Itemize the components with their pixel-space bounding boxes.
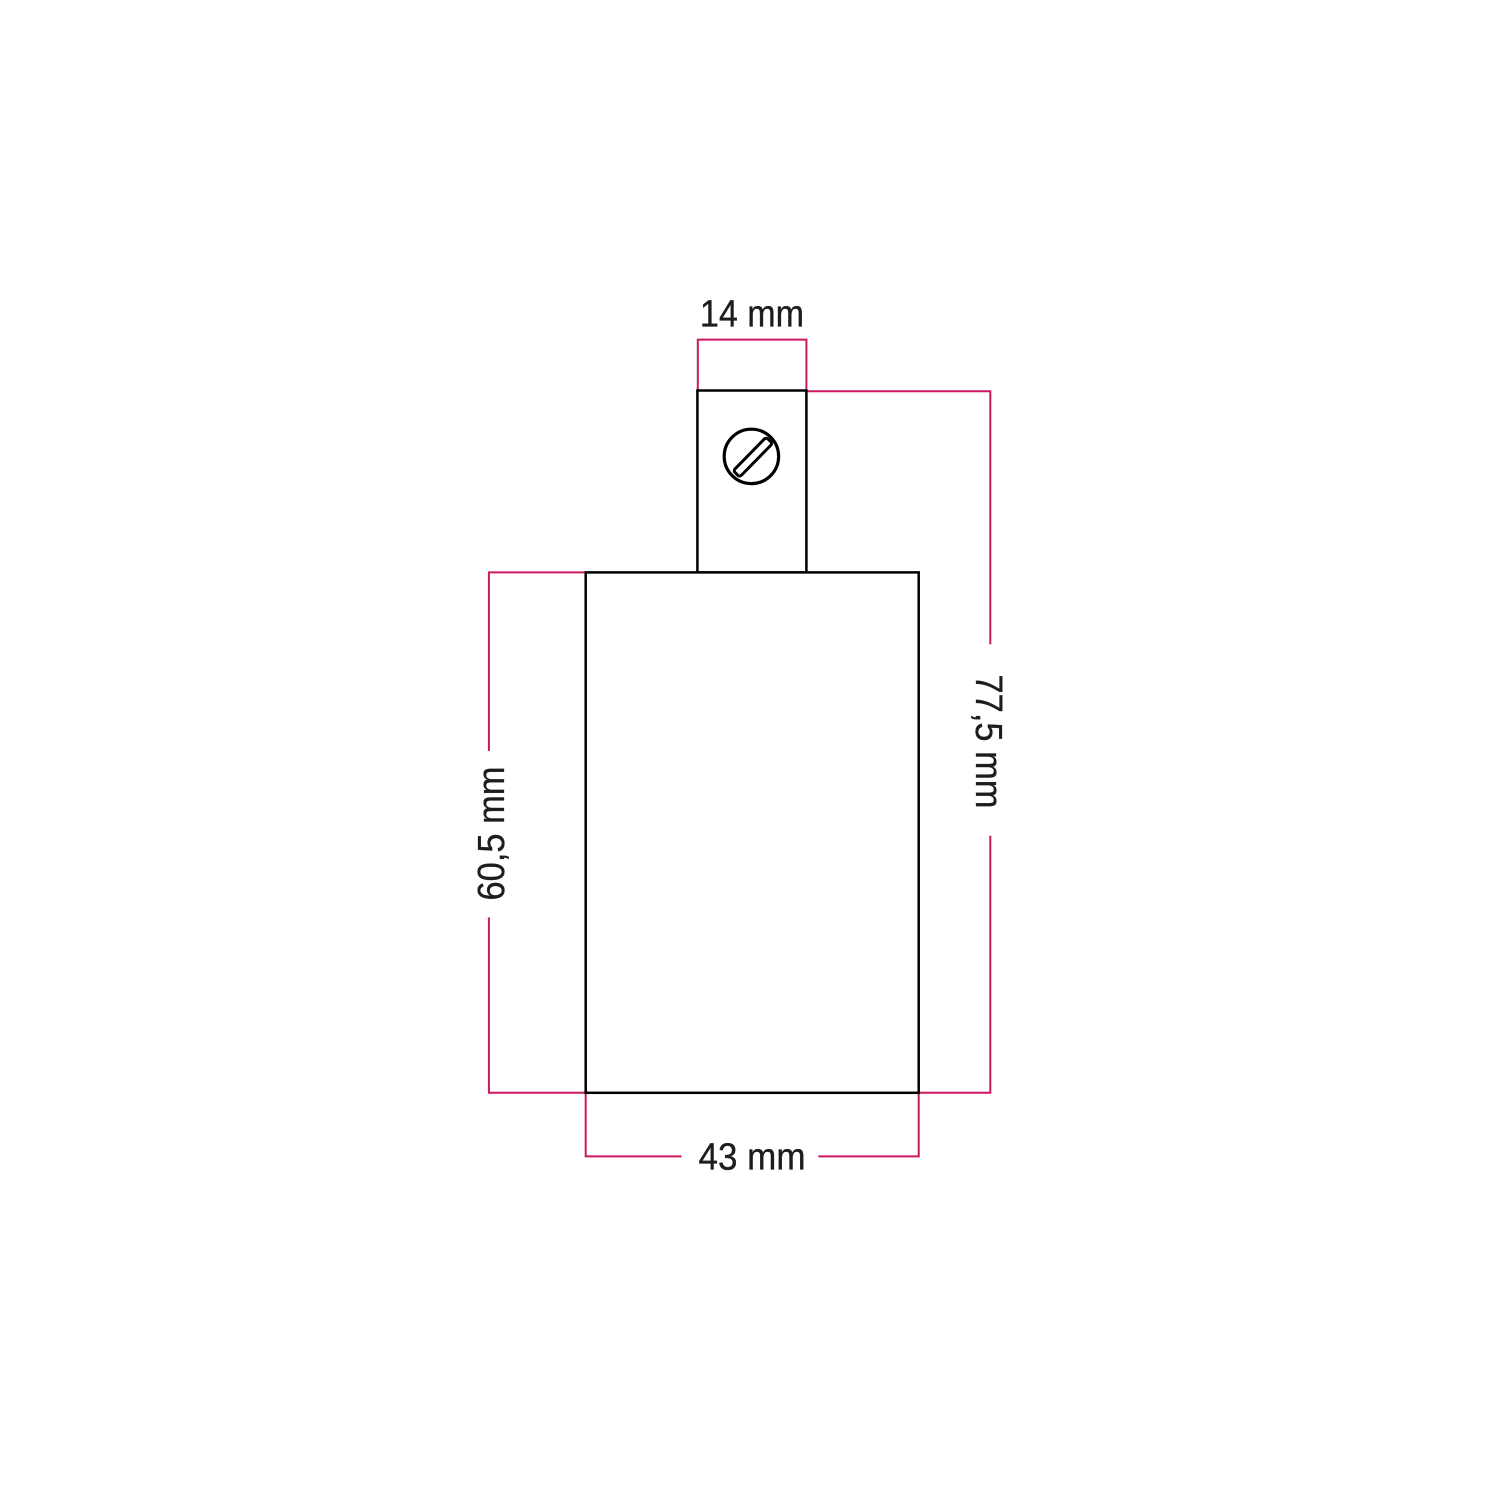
- svg-text:14 mm: 14 mm: [700, 294, 804, 336]
- svg-text:77,5 mm: 77,5 mm: [967, 675, 1009, 809]
- svg-text:43 mm: 43 mm: [699, 1136, 806, 1178]
- svg-text:60,5 mm: 60,5 mm: [471, 767, 513, 901]
